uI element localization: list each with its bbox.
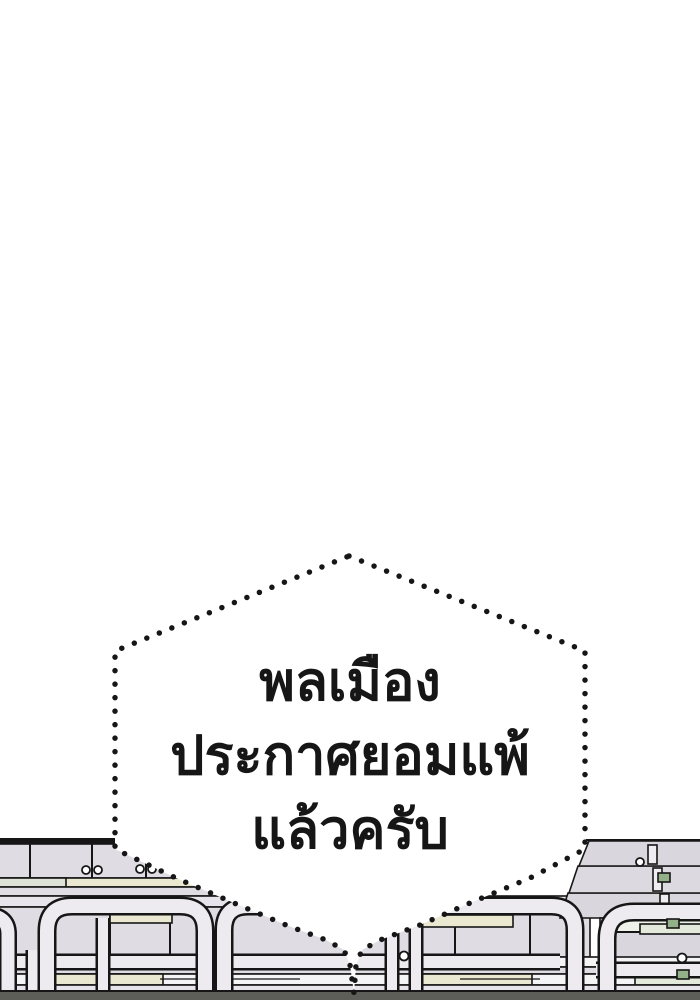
speech-line-2: ประกาศยอมแพ้: [110, 719, 590, 793]
speech-line-3: แล้วครับ: [110, 793, 590, 867]
speech-line-1: พลเมือง: [110, 645, 590, 719]
comic-panel: พลเมือง ประกาศยอมแพ้ แล้วครับ: [0, 0, 700, 1000]
speech-bubble-text: พลเมือง ประกาศยอมแพ้ แล้วครับ: [110, 645, 590, 867]
